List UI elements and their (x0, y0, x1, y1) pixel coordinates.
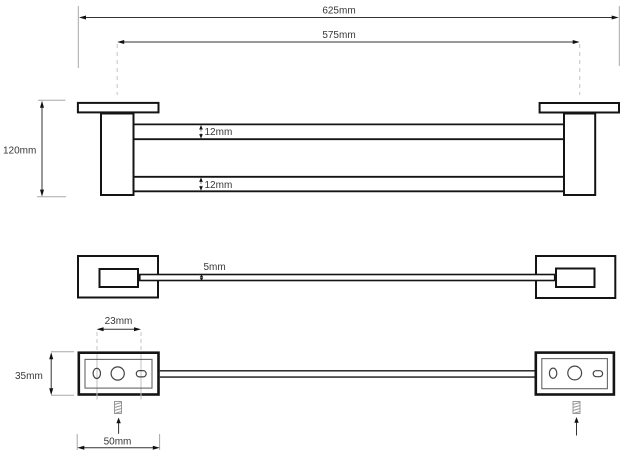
svg-text:35mm: 35mm (15, 371, 43, 382)
svg-text:120mm: 120mm (3, 146, 36, 157)
svg-text:12mm: 12mm (205, 180, 233, 191)
svg-text:625mm: 625mm (322, 6, 355, 17)
svg-text:12mm: 12mm (205, 127, 233, 138)
svg-text:50mm: 50mm (104, 437, 132, 448)
svg-text:5mm: 5mm (204, 262, 226, 273)
svg-text:23mm: 23mm (105, 316, 133, 327)
svg-text:575mm: 575mm (322, 30, 355, 41)
